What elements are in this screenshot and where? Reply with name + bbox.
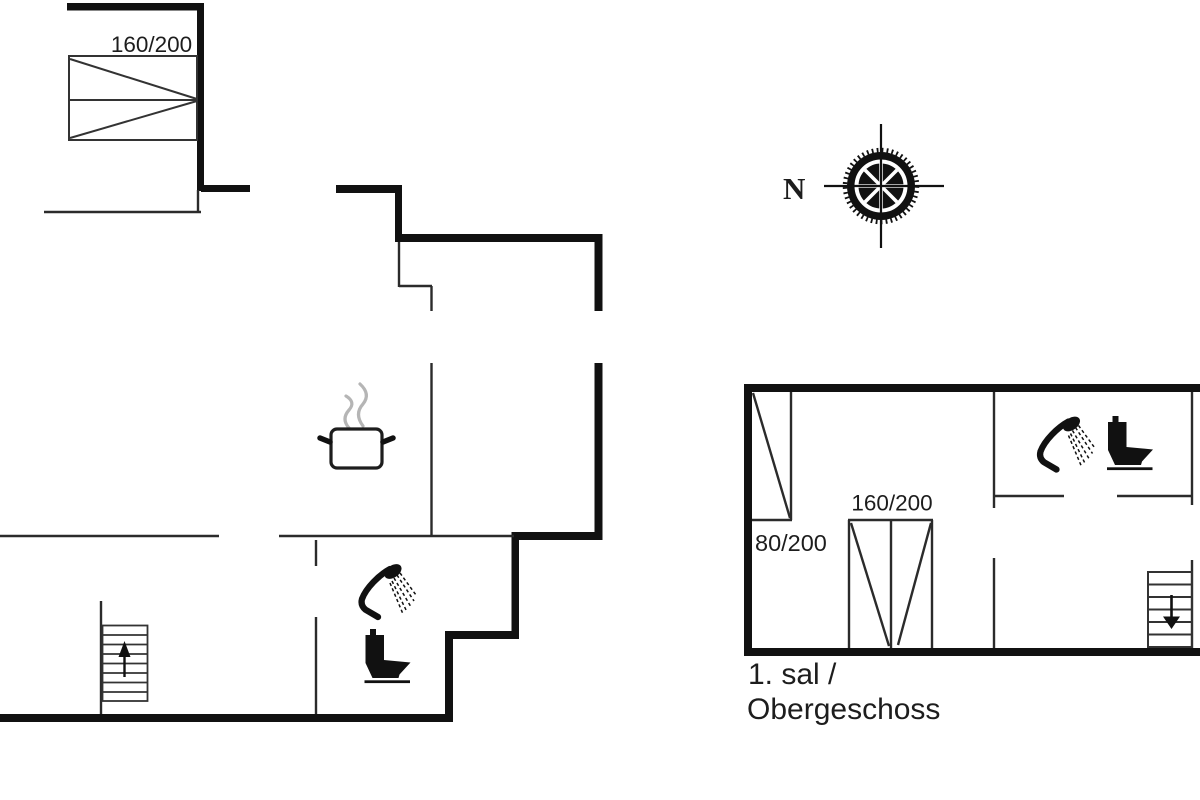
svg-text:160/200: 160/200 [111, 32, 192, 57]
svg-text:160/200: 160/200 [851, 491, 932, 516]
svg-text:80/200: 80/200 [755, 530, 827, 556]
svg-text:Obergeschoss: Obergeschoss [747, 693, 940, 726]
svg-text:N: N [783, 171, 805, 206]
svg-text:1. sal /: 1. sal / [748, 658, 837, 691]
